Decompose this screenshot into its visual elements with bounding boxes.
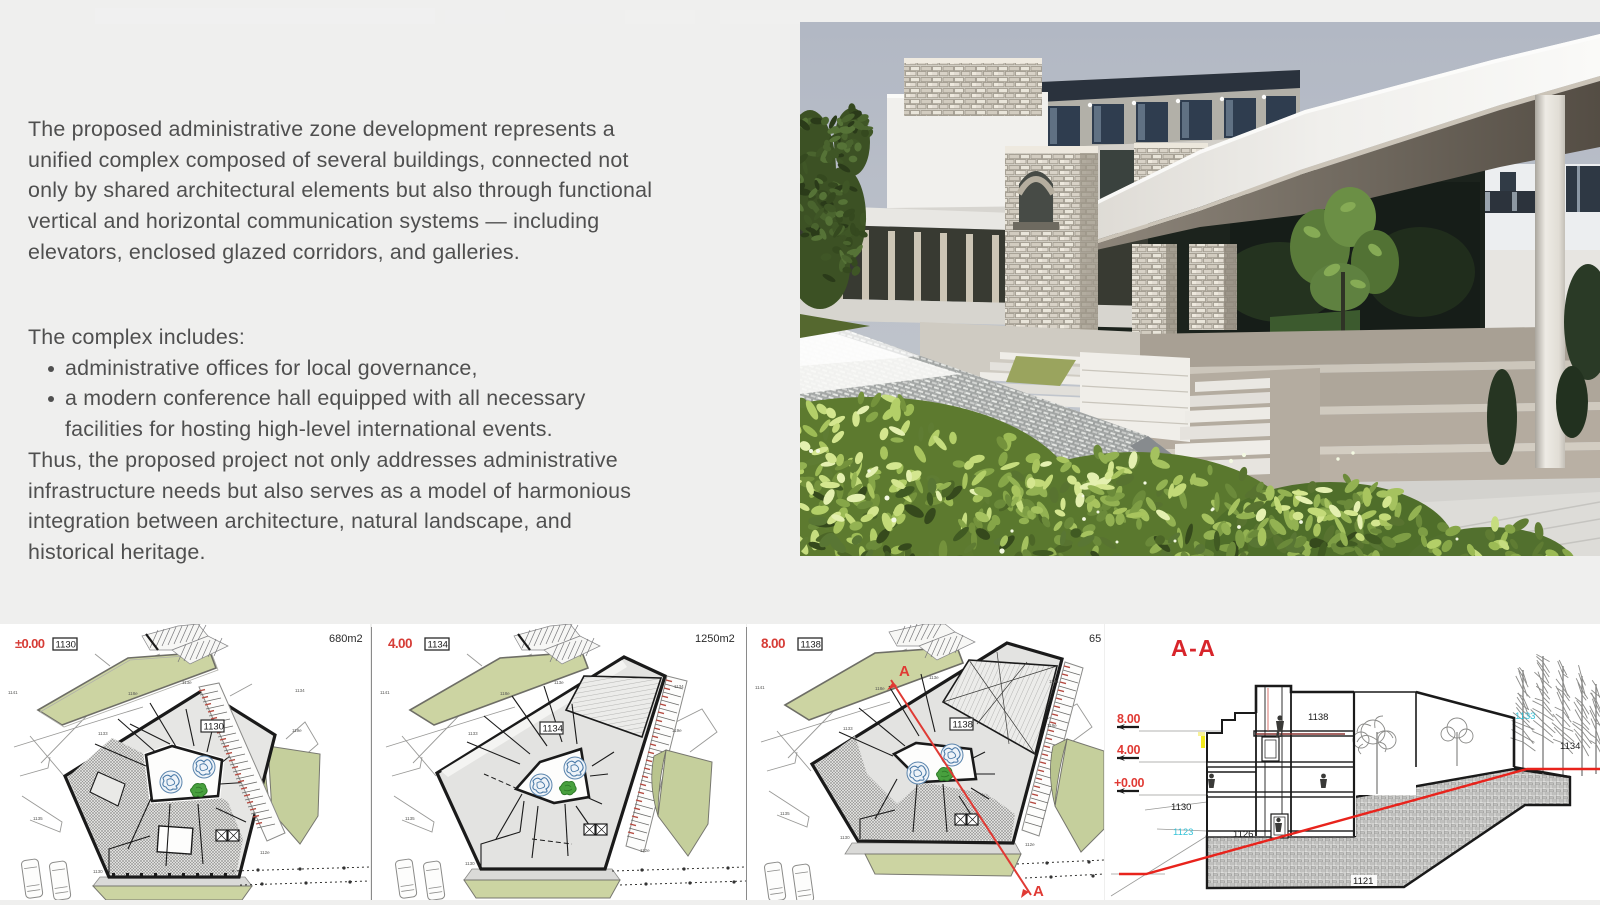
svg-text:8.00: 8.00 (761, 636, 785, 651)
svg-text:1250m2: 1250m2 (695, 633, 735, 645)
svg-text:A-A: A-A (1171, 635, 1216, 661)
svg-text:1134: 1134 (295, 688, 305, 693)
svg-text:1135: 1135 (780, 811, 790, 816)
svg-text:1141: 1141 (755, 685, 765, 690)
svg-text:+0.00: +0.00 (1114, 776, 1144, 790)
svg-text:1123: 1123 (1173, 827, 1193, 838)
svg-text:1121: 1121 (1353, 876, 1373, 887)
svg-text:1134: 1134 (1049, 679, 1059, 684)
svg-text:1130: 1130 (56, 640, 76, 651)
svg-text:1138: 1138 (1308, 712, 1328, 723)
svg-text:113e: 113e (182, 680, 192, 685)
svg-text:1138: 1138 (801, 640, 821, 651)
svg-text:112e: 112e (640, 848, 650, 853)
svg-text:119e: 119e (1047, 723, 1057, 728)
svg-text:1130: 1130 (204, 722, 224, 733)
svg-text:65: 65 (1089, 633, 1101, 645)
svg-text:118e: 118e (875, 686, 885, 691)
svg-text:1134: 1134 (1560, 741, 1580, 752)
svg-text:A: A (1033, 883, 1044, 900)
svg-text:A: A (899, 663, 910, 680)
svg-text:1138: 1138 (953, 720, 973, 731)
svg-text:118e: 118e (500, 691, 510, 696)
svg-text:1130: 1130 (93, 869, 103, 874)
svg-text:1134: 1134 (674, 684, 684, 689)
svg-text:1135: 1135 (405, 816, 415, 821)
svg-text:1134: 1134 (543, 724, 563, 735)
svg-text:112e: 112e (260, 850, 270, 855)
svg-text:±0.00: ±0.00 (15, 636, 45, 651)
svg-text:1141: 1141 (380, 690, 390, 695)
svg-text:1133: 1133 (98, 731, 108, 736)
svg-text:4.00: 4.00 (1117, 743, 1140, 757)
svg-text:1133: 1133 (843, 726, 853, 731)
svg-text:1130: 1130 (465, 861, 475, 866)
svg-text:1133: 1133 (1515, 711, 1535, 722)
svg-text:680m2: 680m2 (329, 633, 363, 645)
svg-text:119e: 119e (292, 728, 302, 733)
svg-text:113e: 113e (554, 680, 564, 685)
svg-text:119e: 119e (672, 728, 682, 733)
svg-text:4.00: 4.00 (388, 636, 412, 651)
svg-text:8.00: 8.00 (1117, 712, 1140, 726)
svg-text:112e: 112e (1025, 842, 1035, 847)
svg-text:1126: 1126 (1233, 829, 1253, 840)
svg-text:1133: 1133 (468, 731, 478, 736)
svg-text:113e: 113e (929, 675, 939, 680)
svg-text:1134: 1134 (428, 640, 448, 651)
svg-text:1141: 1141 (8, 690, 18, 695)
svg-text:118e: 118e (128, 691, 138, 696)
svg-text:1130: 1130 (840, 835, 850, 840)
svg-text:1135: 1135 (33, 816, 43, 821)
svg-text:1130: 1130 (1171, 802, 1191, 813)
